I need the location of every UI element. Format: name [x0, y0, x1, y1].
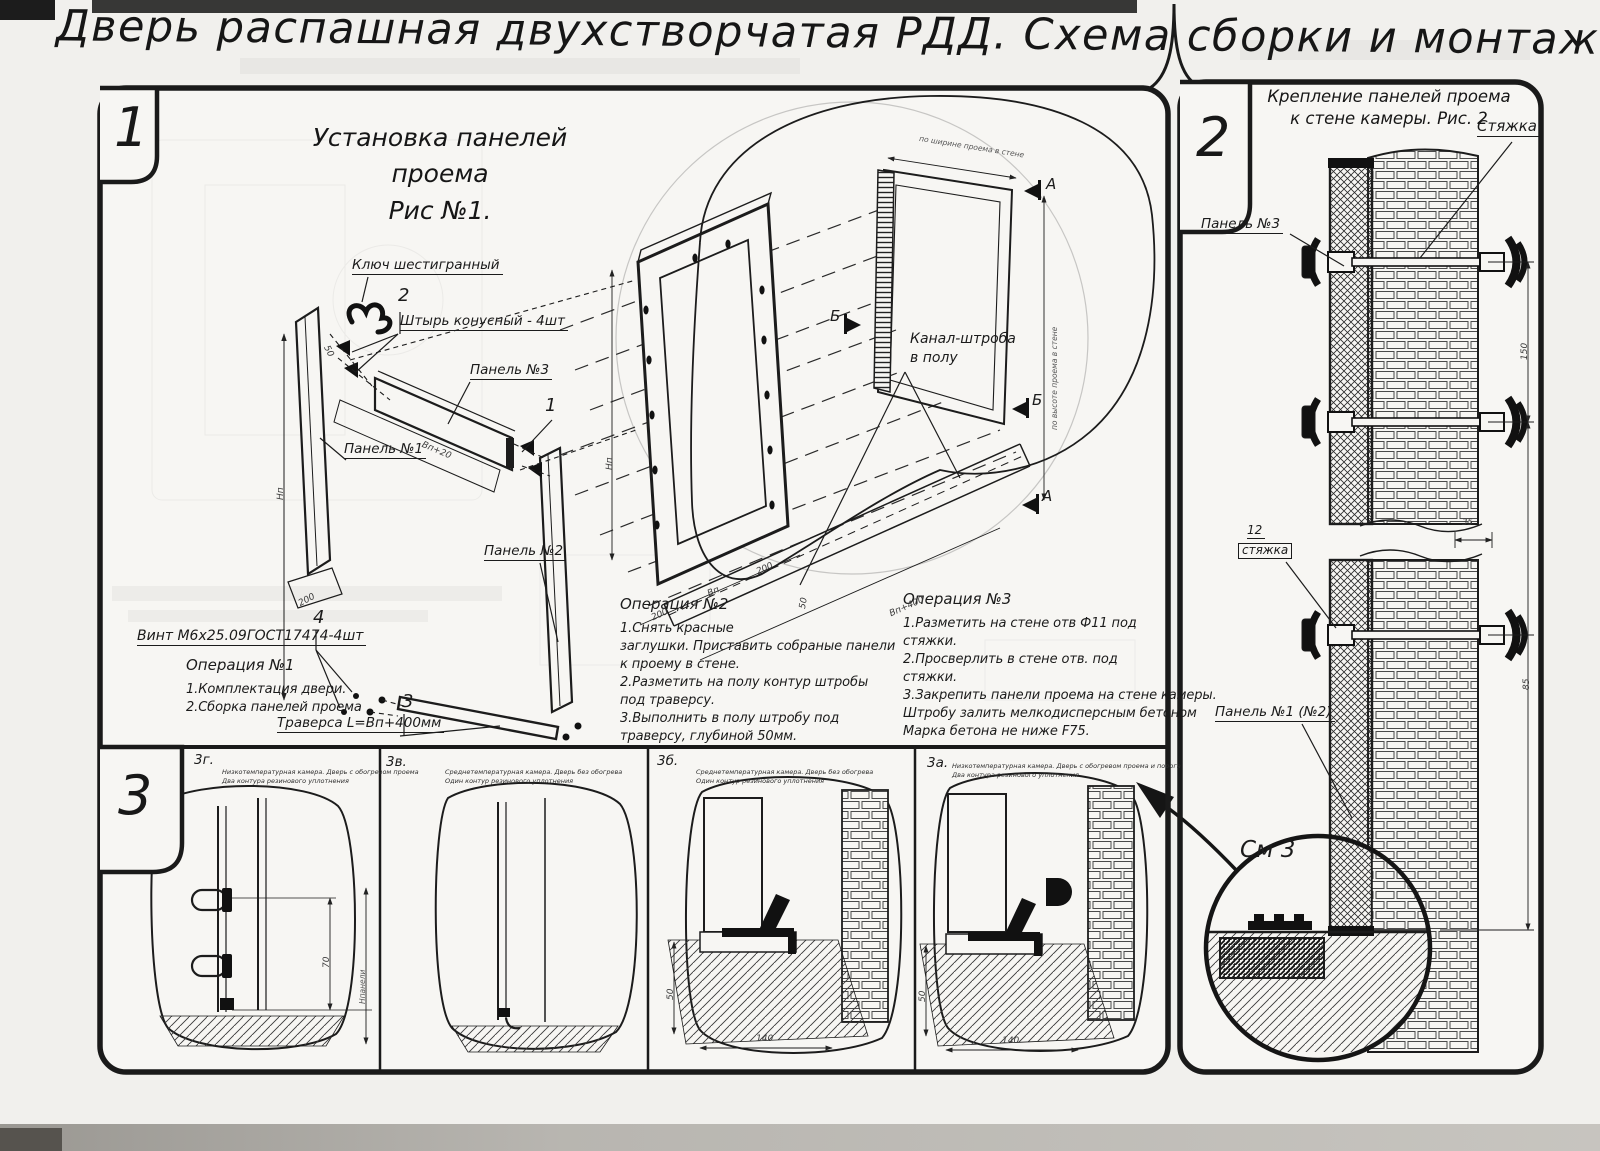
- fig1-title: Установка панелей проема Рис №1.: [290, 120, 590, 229]
- caption-line: Среднетемпературная камера. Дверь без об…: [445, 768, 622, 777]
- op2-line: под траверсу.: [620, 692, 895, 710]
- operation-3: Операция №3 1.Разметить на стене отв Ф11…: [903, 590, 1217, 741]
- label-pin: Штырь конусный - 4шт: [400, 314, 568, 331]
- label-panel3-fig2: Панель №3: [1201, 217, 1283, 234]
- section-mark-b-right: Б: [1032, 392, 1042, 409]
- section-mark-a-top: А: [1046, 176, 1056, 193]
- op3-line: 3.Закрепить панели проема на стене камер…: [903, 687, 1217, 705]
- label-panel2: Панель №2: [484, 544, 566, 561]
- label-tie-rod: Стяжка: [1477, 118, 1540, 137]
- callout-4: 4: [313, 608, 324, 628]
- fig2-title-line1: Крепление панелей проема: [1252, 86, 1526, 108]
- label-panel12: Панель №1 (№2): [1215, 705, 1335, 722]
- operation-1: Операция №1 1.Комплектация двери. 2.Сбор…: [186, 656, 362, 717]
- caption-line: Два контура резинового уплотнения: [222, 777, 419, 786]
- op3-line: стяжки.: [903, 633, 1217, 651]
- op3-line: Марка бетона не ниже F75.: [903, 723, 1217, 741]
- detail-code-3g: 3г.: [194, 752, 214, 768]
- fig3-badge: 3: [118, 764, 152, 827]
- op2-line: 1.Снять красные: [620, 620, 895, 638]
- dim-np-assembled: Нп: [605, 457, 615, 470]
- dim-np-exploded: Нп: [276, 487, 286, 500]
- caption-line: Два контура резинового уплотнения: [952, 771, 1181, 780]
- fig2-badge: 2: [1196, 106, 1230, 169]
- section-mark-b-left: Б: [830, 308, 840, 325]
- op2-line: к проему в стене.: [620, 656, 895, 674]
- op3-line: Штробу залить мелкодисперсным бетоном: [903, 705, 1217, 723]
- dim-140-3a: 140: [1002, 1036, 1019, 1046]
- detail-code-3a: 3а.: [927, 755, 948, 771]
- op2-line: 3.Выполнить в полу штробу под: [620, 710, 895, 728]
- op3-line: стяжки.: [903, 669, 1217, 687]
- label-screw: Винт М6х25.09ГОСТ17474-4шт: [137, 629, 366, 646]
- label-hex-key: Ключ шестигранный: [352, 258, 503, 275]
- detail-caption-3g: Низкотемпературная камера. Дверь с обогр…: [222, 768, 419, 786]
- op1-line: 1.Комплектация двери.: [186, 681, 362, 699]
- label-traverse: Траверса L=Bп+400мм: [277, 716, 444, 733]
- caption-line: Среднетемпературная камера. Дверь без об…: [696, 768, 873, 777]
- drawing-sheet: Дверь распашная двухстворчатая РДД. Схем…: [0, 0, 1600, 1151]
- label-panel3: Панель №3: [470, 363, 552, 380]
- fig1-title-line1: Установка панелей проема: [290, 120, 590, 193]
- dim-35: 35: [1462, 518, 1473, 528]
- op3-line: 2.Просверлить в стене отв. под: [903, 651, 1217, 669]
- dim-50-3b: 50: [666, 989, 676, 1000]
- label-channel-line2: в полу: [910, 351, 958, 366]
- callout-1: 1: [545, 396, 556, 416]
- op2-line: 2.Разметить на полу контур штробы: [620, 674, 895, 692]
- detail-caption-3b: Среднетемпературная камера. Дверь без об…: [696, 768, 873, 786]
- dim-50-3a: 50: [918, 991, 928, 1002]
- callout-3: 3: [402, 692, 413, 712]
- label-channel-line1: Канал-штроба: [910, 332, 1016, 347]
- caption-line: Один контур резинового уплотнения: [696, 777, 873, 786]
- label-tie-word: стяжка: [1238, 543, 1292, 559]
- caption-line: Один контур резинового уплотнения: [445, 777, 622, 786]
- fig1-title-line2: Рис №1.: [290, 193, 590, 229]
- dim-opening-height: по высоте проема в стене: [1050, 327, 1059, 430]
- op1-title: Операция №1: [186, 656, 362, 674]
- dim-85: 85: [1522, 679, 1532, 690]
- detail-code-3b: 3б.: [657, 753, 678, 769]
- detail-code-3v: 3в.: [386, 754, 407, 770]
- dim-140-3b: 140: [756, 1034, 773, 1044]
- callout-2: 2: [398, 286, 409, 306]
- detail-caption-3v: Среднетемпературная камера. Дверь без об…: [445, 768, 622, 786]
- label-tie-number: 12: [1247, 524, 1265, 539]
- op2-line: траверсу, глубиной 50мм.: [620, 728, 895, 746]
- fig1-badge: 1: [114, 96, 148, 159]
- op3-title: Операция №3: [903, 590, 1217, 608]
- dim-50-floor: 50: [798, 597, 810, 610]
- label-see-detail3: См 3: [1240, 838, 1295, 863]
- section-mark-a-bottom: А: [1042, 488, 1052, 505]
- op3-line: 1.Разметить на стене отв Ф11 под: [903, 615, 1217, 633]
- dim-70: 70: [322, 957, 332, 968]
- dim-150: 150: [1520, 343, 1530, 360]
- op2-line: заглушки. Приставить собраные панели: [620, 638, 895, 656]
- label-panel1: Панель №1: [344, 442, 426, 459]
- dim-hpanel: Нпанели: [358, 970, 367, 1004]
- detail-caption-3a: Низкотемпературная камера. Дверь с обогр…: [952, 762, 1181, 780]
- caption-line: Низкотемпературная камера. Дверь с обогр…: [952, 762, 1181, 771]
- technical-drawing-lineart: [0, 0, 1600, 1151]
